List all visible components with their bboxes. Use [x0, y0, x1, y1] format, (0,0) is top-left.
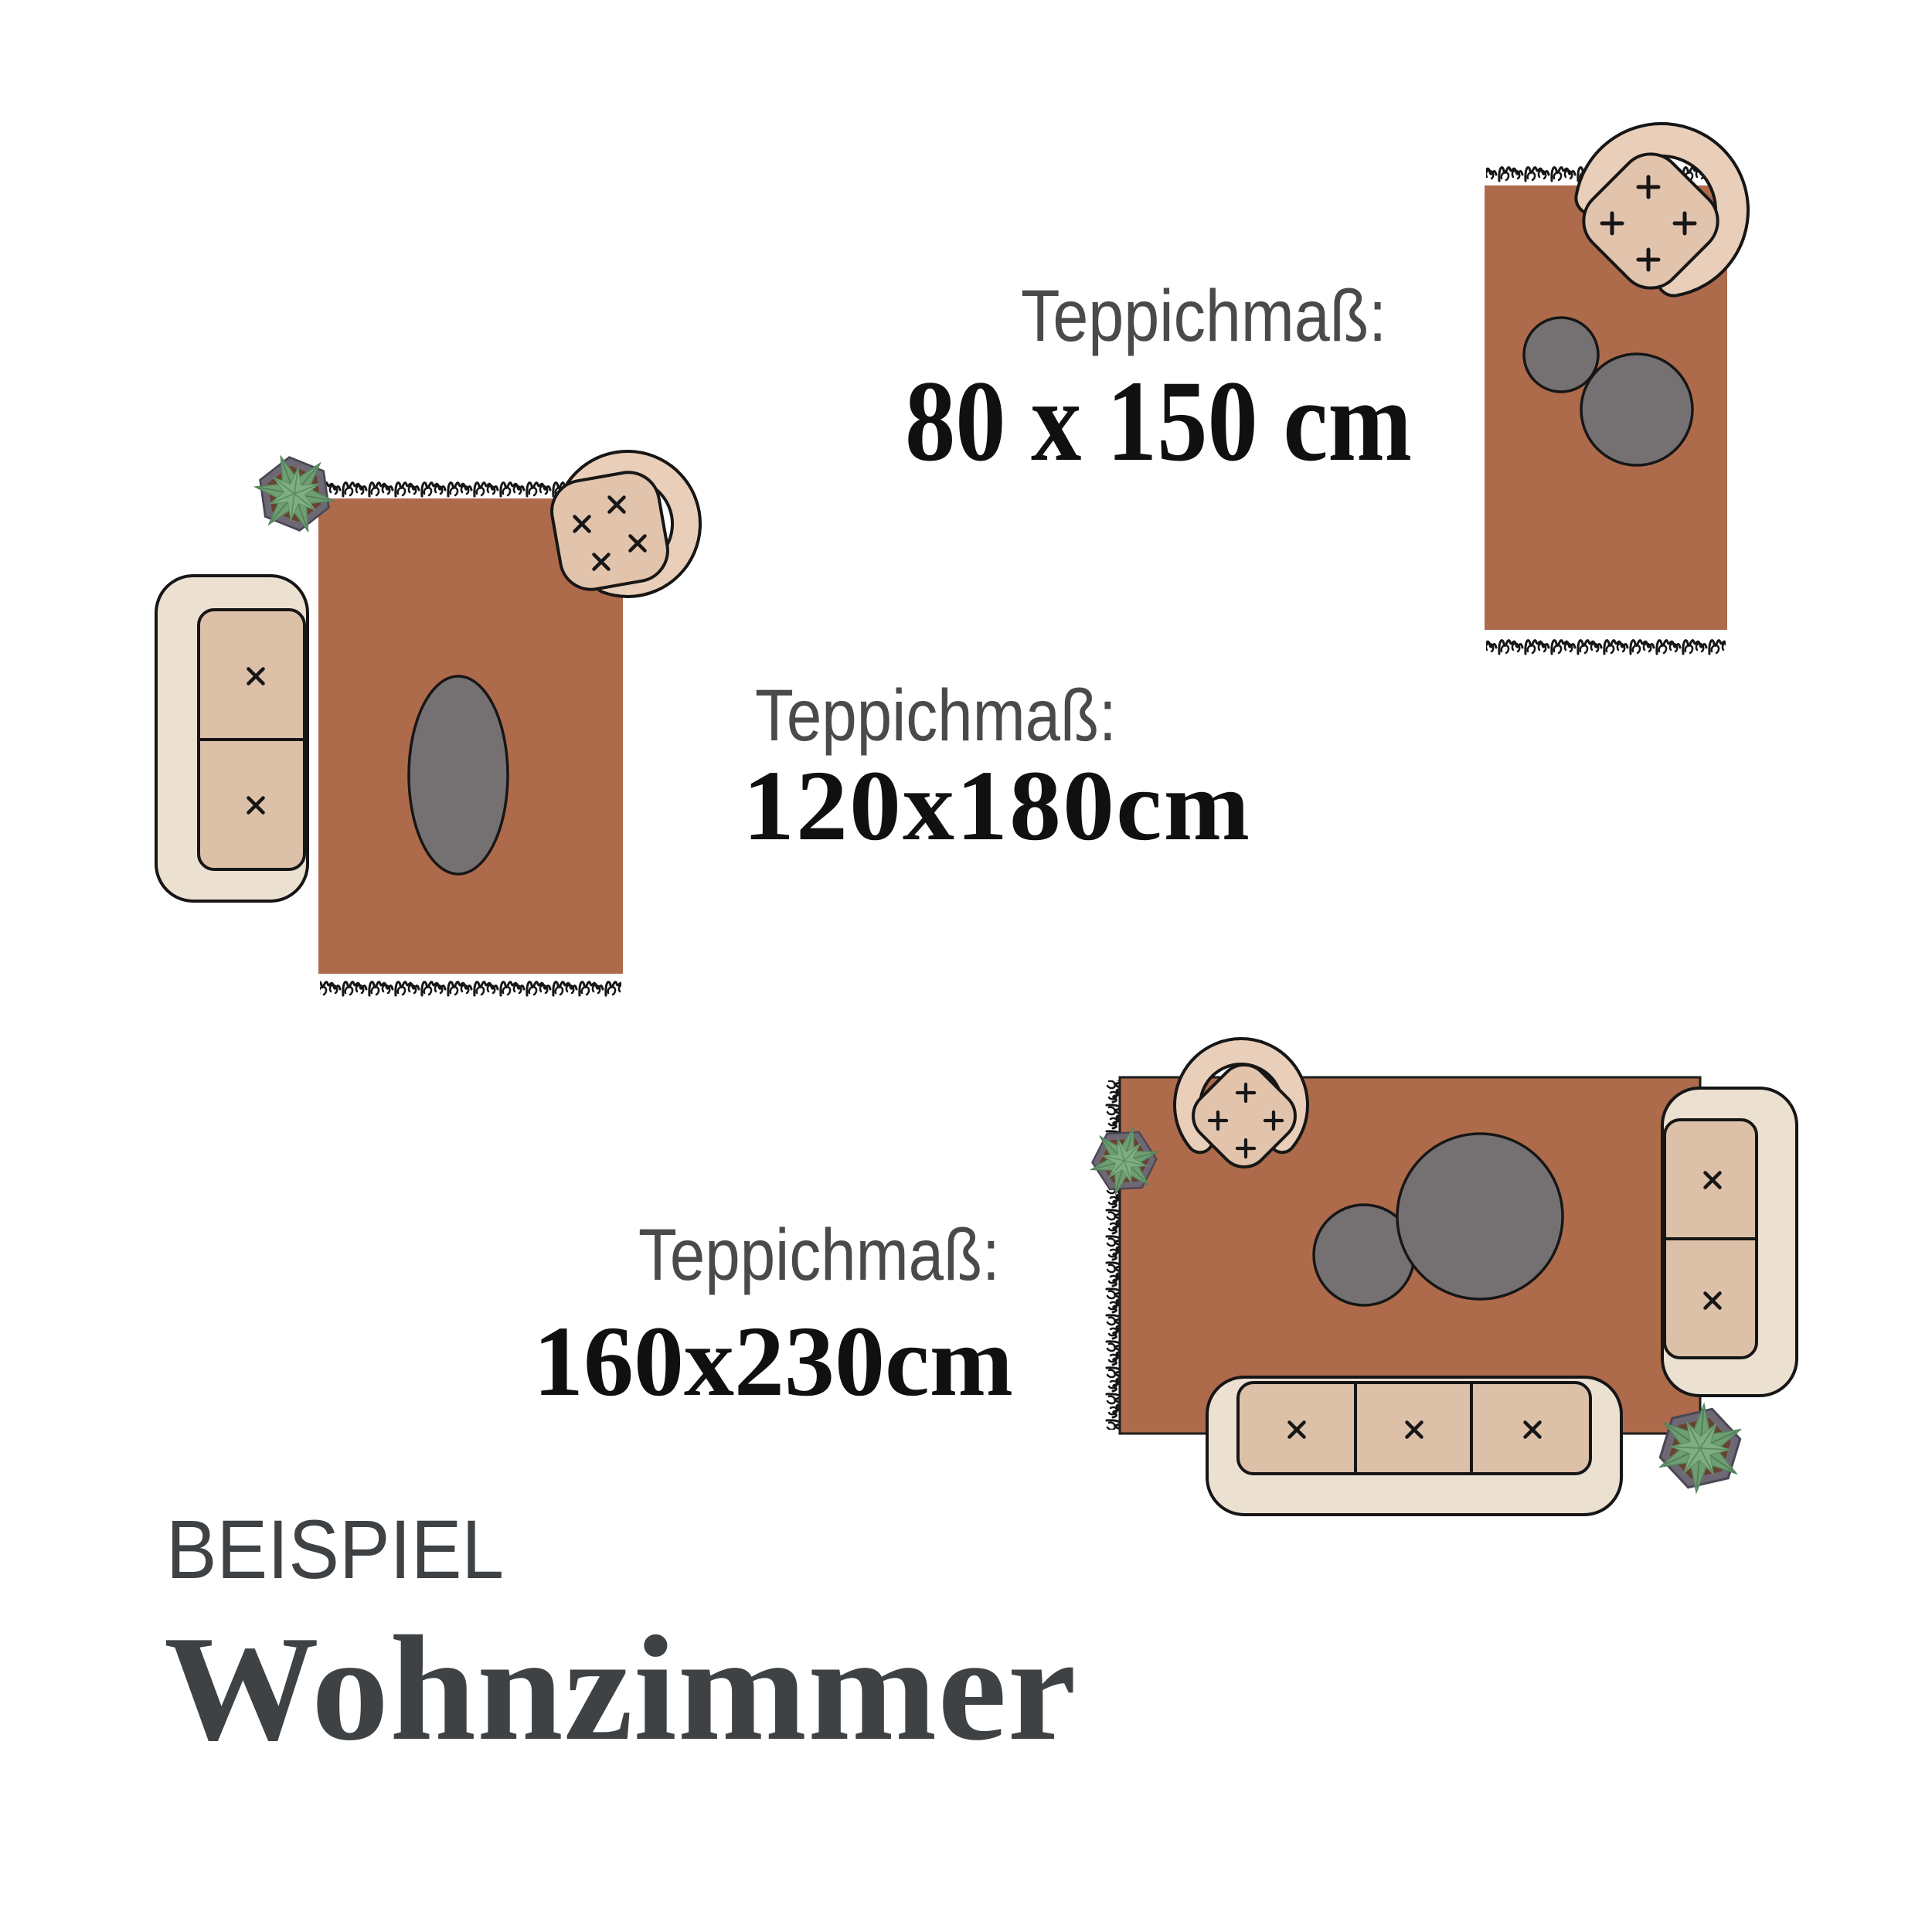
- oval-coffee-table: [409, 676, 508, 874]
- rug-size-label-80x150: Teppichmaß:: [1021, 280, 1386, 353]
- rug-size-value-80x150: 80 x 150 cm: [905, 363, 1412, 479]
- two-seat-sofa-vertical: [1662, 1088, 1797, 1396]
- rug-size-label-160x230: Teppichmaß:: [638, 1219, 1000, 1292]
- scene-120x180-illustration: [108, 417, 734, 1043]
- round-side-table-large: [1581, 354, 1692, 465]
- rug-size-value-120x180: 120x180cm: [743, 756, 1251, 856]
- rug-size-label-120x180: Teppichmaß:: [755, 679, 1117, 753]
- three-seat-sofa: [1207, 1377, 1621, 1515]
- armchair-seat: [547, 468, 673, 594]
- page-title: Wohnzimmer: [164, 1614, 1077, 1764]
- scene-160x230-illustration: [1066, 1020, 1832, 1561]
- rug-size-infographic: Teppichmaß: 80 x 150 cm Teppichmaß: 120x…: [0, 0, 1932, 1932]
- example-eyebrow: BEISPIEL: [166, 1508, 504, 1591]
- round-side-table-small: [1524, 318, 1598, 392]
- scene-80x150-illustration: [1461, 108, 1785, 680]
- two-seat-sofa: [156, 576, 308, 901]
- rug-fringe-bottom: [1486, 628, 1726, 658]
- rug-size-value-160x230: 160x230cm: [533, 1311, 1013, 1412]
- rug-fringe-bottom: [320, 973, 621, 1000]
- round-side-table-large: [1397, 1134, 1563, 1299]
